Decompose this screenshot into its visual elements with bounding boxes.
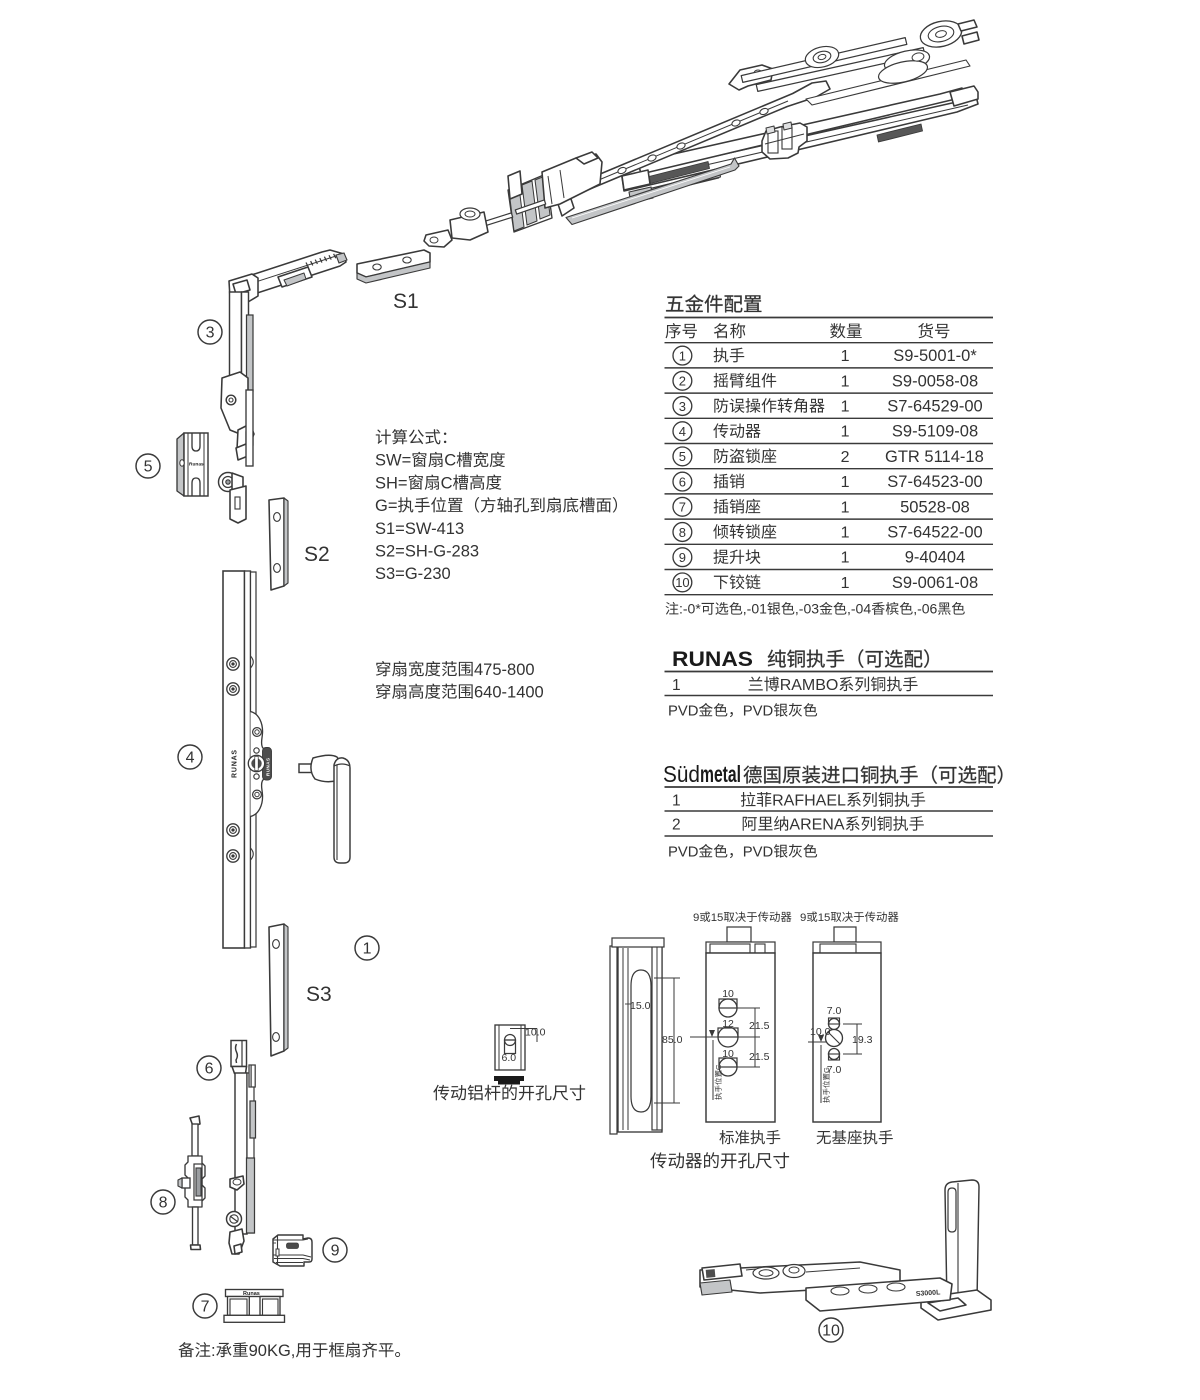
- svg-text:9: 9: [331, 1243, 340, 1260]
- svg-text:PVD: PVD: [668, 704, 698, 720]
- svg-text:7.0: 7.0: [827, 1005, 842, 1017]
- svg-text:C: C: [444, 452, 456, 470]
- svg-text:S7-64529-00: S7-64529-00: [887, 398, 982, 416]
- svg-text:9: 9: [693, 912, 699, 924]
- svg-text:SW=: SW=: [375, 452, 411, 470]
- svg-text:8: 8: [159, 1195, 168, 1212]
- svg-text:1: 1: [841, 525, 850, 542]
- svg-text:S9-5001-0*: S9-5001-0*: [893, 347, 977, 365]
- svg-text:10: 10: [822, 1323, 840, 1340]
- svg-text:S2: S2: [304, 543, 330, 566]
- svg-text:1: 1: [672, 677, 681, 694]
- svg-text:GTR 5114-18: GTR 5114-18: [885, 448, 984, 466]
- svg-text:2: 2: [679, 374, 686, 389]
- svg-text:G: G: [714, 1064, 723, 1070]
- svg-text:7: 7: [679, 500, 686, 515]
- svg-text:19.3: 19.3: [852, 1034, 873, 1046]
- svg-text:10: 10: [722, 988, 734, 1000]
- svg-text:PVD: PVD: [668, 845, 698, 861]
- svg-text:PVD: PVD: [743, 704, 773, 720]
- svg-text:21.5: 21.5: [749, 1051, 770, 1063]
- svg-text:RAMBO: RAMBO: [780, 677, 839, 694]
- svg-text:6: 6: [205, 1061, 214, 1078]
- svg-text:50528-08: 50528-08: [900, 498, 970, 516]
- svg-text:1: 1: [679, 348, 686, 363]
- svg-text:12: 12: [722, 1018, 734, 1030]
- svg-text:2: 2: [841, 449, 850, 466]
- svg-text:2: 2: [672, 817, 681, 834]
- svg-text:metal: metal: [700, 761, 741, 787]
- svg-text:10.0: 10.0: [525, 1027, 546, 1039]
- svg-text:,-06: ,-06: [913, 601, 937, 617]
- svg-text:5: 5: [679, 449, 686, 464]
- svg-text:1: 1: [841, 550, 850, 567]
- svg-text:7: 7: [201, 1299, 210, 1316]
- svg-text:15.0: 15.0: [630, 1000, 651, 1012]
- svg-text:1: 1: [841, 424, 850, 441]
- svg-text:1: 1: [841, 575, 850, 592]
- svg-text:9-40404: 9-40404: [905, 549, 966, 567]
- svg-text:21.5: 21.5: [749, 1020, 770, 1032]
- svg-text:1: 1: [363, 941, 372, 958]
- svg-text:3: 3: [679, 399, 686, 414]
- svg-text:1: 1: [672, 793, 681, 810]
- svg-text:1: 1: [841, 373, 850, 390]
- svg-text:640-1400: 640-1400: [474, 684, 544, 702]
- svg-text:6.0: 6.0: [502, 1052, 517, 1064]
- svg-text:,-04: ,-04: [847, 601, 871, 617]
- svg-text:3: 3: [206, 325, 215, 342]
- svg-text:6: 6: [679, 474, 686, 489]
- svg-text:PVD: PVD: [743, 845, 773, 861]
- svg-text:S2=SH-G-283: S2=SH-G-283: [375, 543, 479, 561]
- svg-text:5: 5: [144, 459, 153, 476]
- svg-text:9: 9: [679, 550, 686, 565]
- svg-text:SH=: SH=: [375, 474, 408, 492]
- svg-text:Süd: Süd: [663, 761, 700, 787]
- svg-text:S3: S3: [306, 983, 332, 1006]
- svg-text:15: 15: [711, 912, 724, 924]
- svg-text:,-03: ,-03: [795, 601, 819, 617]
- svg-text:85.0: 85.0: [662, 1034, 683, 1046]
- svg-text:S1: S1: [393, 290, 419, 313]
- svg-text:10: 10: [675, 575, 689, 590]
- svg-text:S9-0058-08: S9-0058-08: [892, 372, 978, 390]
- svg-text:RUNAS: RUNAS: [672, 647, 753, 671]
- svg-text:1: 1: [841, 348, 850, 365]
- svg-text:S7-64523-00: S7-64523-00: [887, 473, 982, 491]
- svg-text:S9-0061-08: S9-0061-08: [892, 574, 978, 592]
- svg-text:G: G: [822, 1067, 831, 1073]
- svg-text::: :: [211, 1342, 216, 1360]
- svg-text:RUNAS: RUNAS: [232, 749, 239, 778]
- svg-text:S9-5109-08: S9-5109-08: [892, 423, 978, 441]
- svg-text:RUNAS: RUNAS: [266, 757, 271, 776]
- svg-text:S1=SW-413: S1=SW-413: [375, 520, 464, 538]
- svg-text:15: 15: [818, 912, 831, 924]
- svg-text:G=: G=: [375, 497, 397, 515]
- svg-text:ARENA: ARENA: [789, 817, 844, 834]
- svg-text:9: 9: [800, 912, 806, 924]
- svg-text:1: 1: [841, 499, 850, 516]
- svg-text:1: 1: [841, 399, 850, 416]
- svg-text:S7-64522-00: S7-64522-00: [887, 524, 982, 542]
- svg-text:Runas: Runas: [189, 462, 204, 468]
- svg-text:10: 10: [722, 1048, 734, 1060]
- svg-text:C: C: [441, 474, 453, 492]
- svg-text:4: 4: [186, 750, 195, 767]
- svg-text:4: 4: [679, 424, 686, 439]
- svg-text:1: 1: [841, 474, 850, 491]
- svg-text:475-800: 475-800: [474, 661, 535, 679]
- svg-text:S3=G-230: S3=G-230: [375, 565, 451, 583]
- svg-text::-0*: :-0*: [679, 601, 701, 617]
- svg-text:Runas: Runas: [243, 1291, 260, 1297]
- svg-text:,-01: ,-01: [743, 601, 767, 617]
- svg-text:90KG,: 90KG,: [249, 1342, 296, 1360]
- svg-text:8: 8: [679, 525, 686, 540]
- svg-text:RAFHAEL: RAFHAEL: [772, 793, 846, 810]
